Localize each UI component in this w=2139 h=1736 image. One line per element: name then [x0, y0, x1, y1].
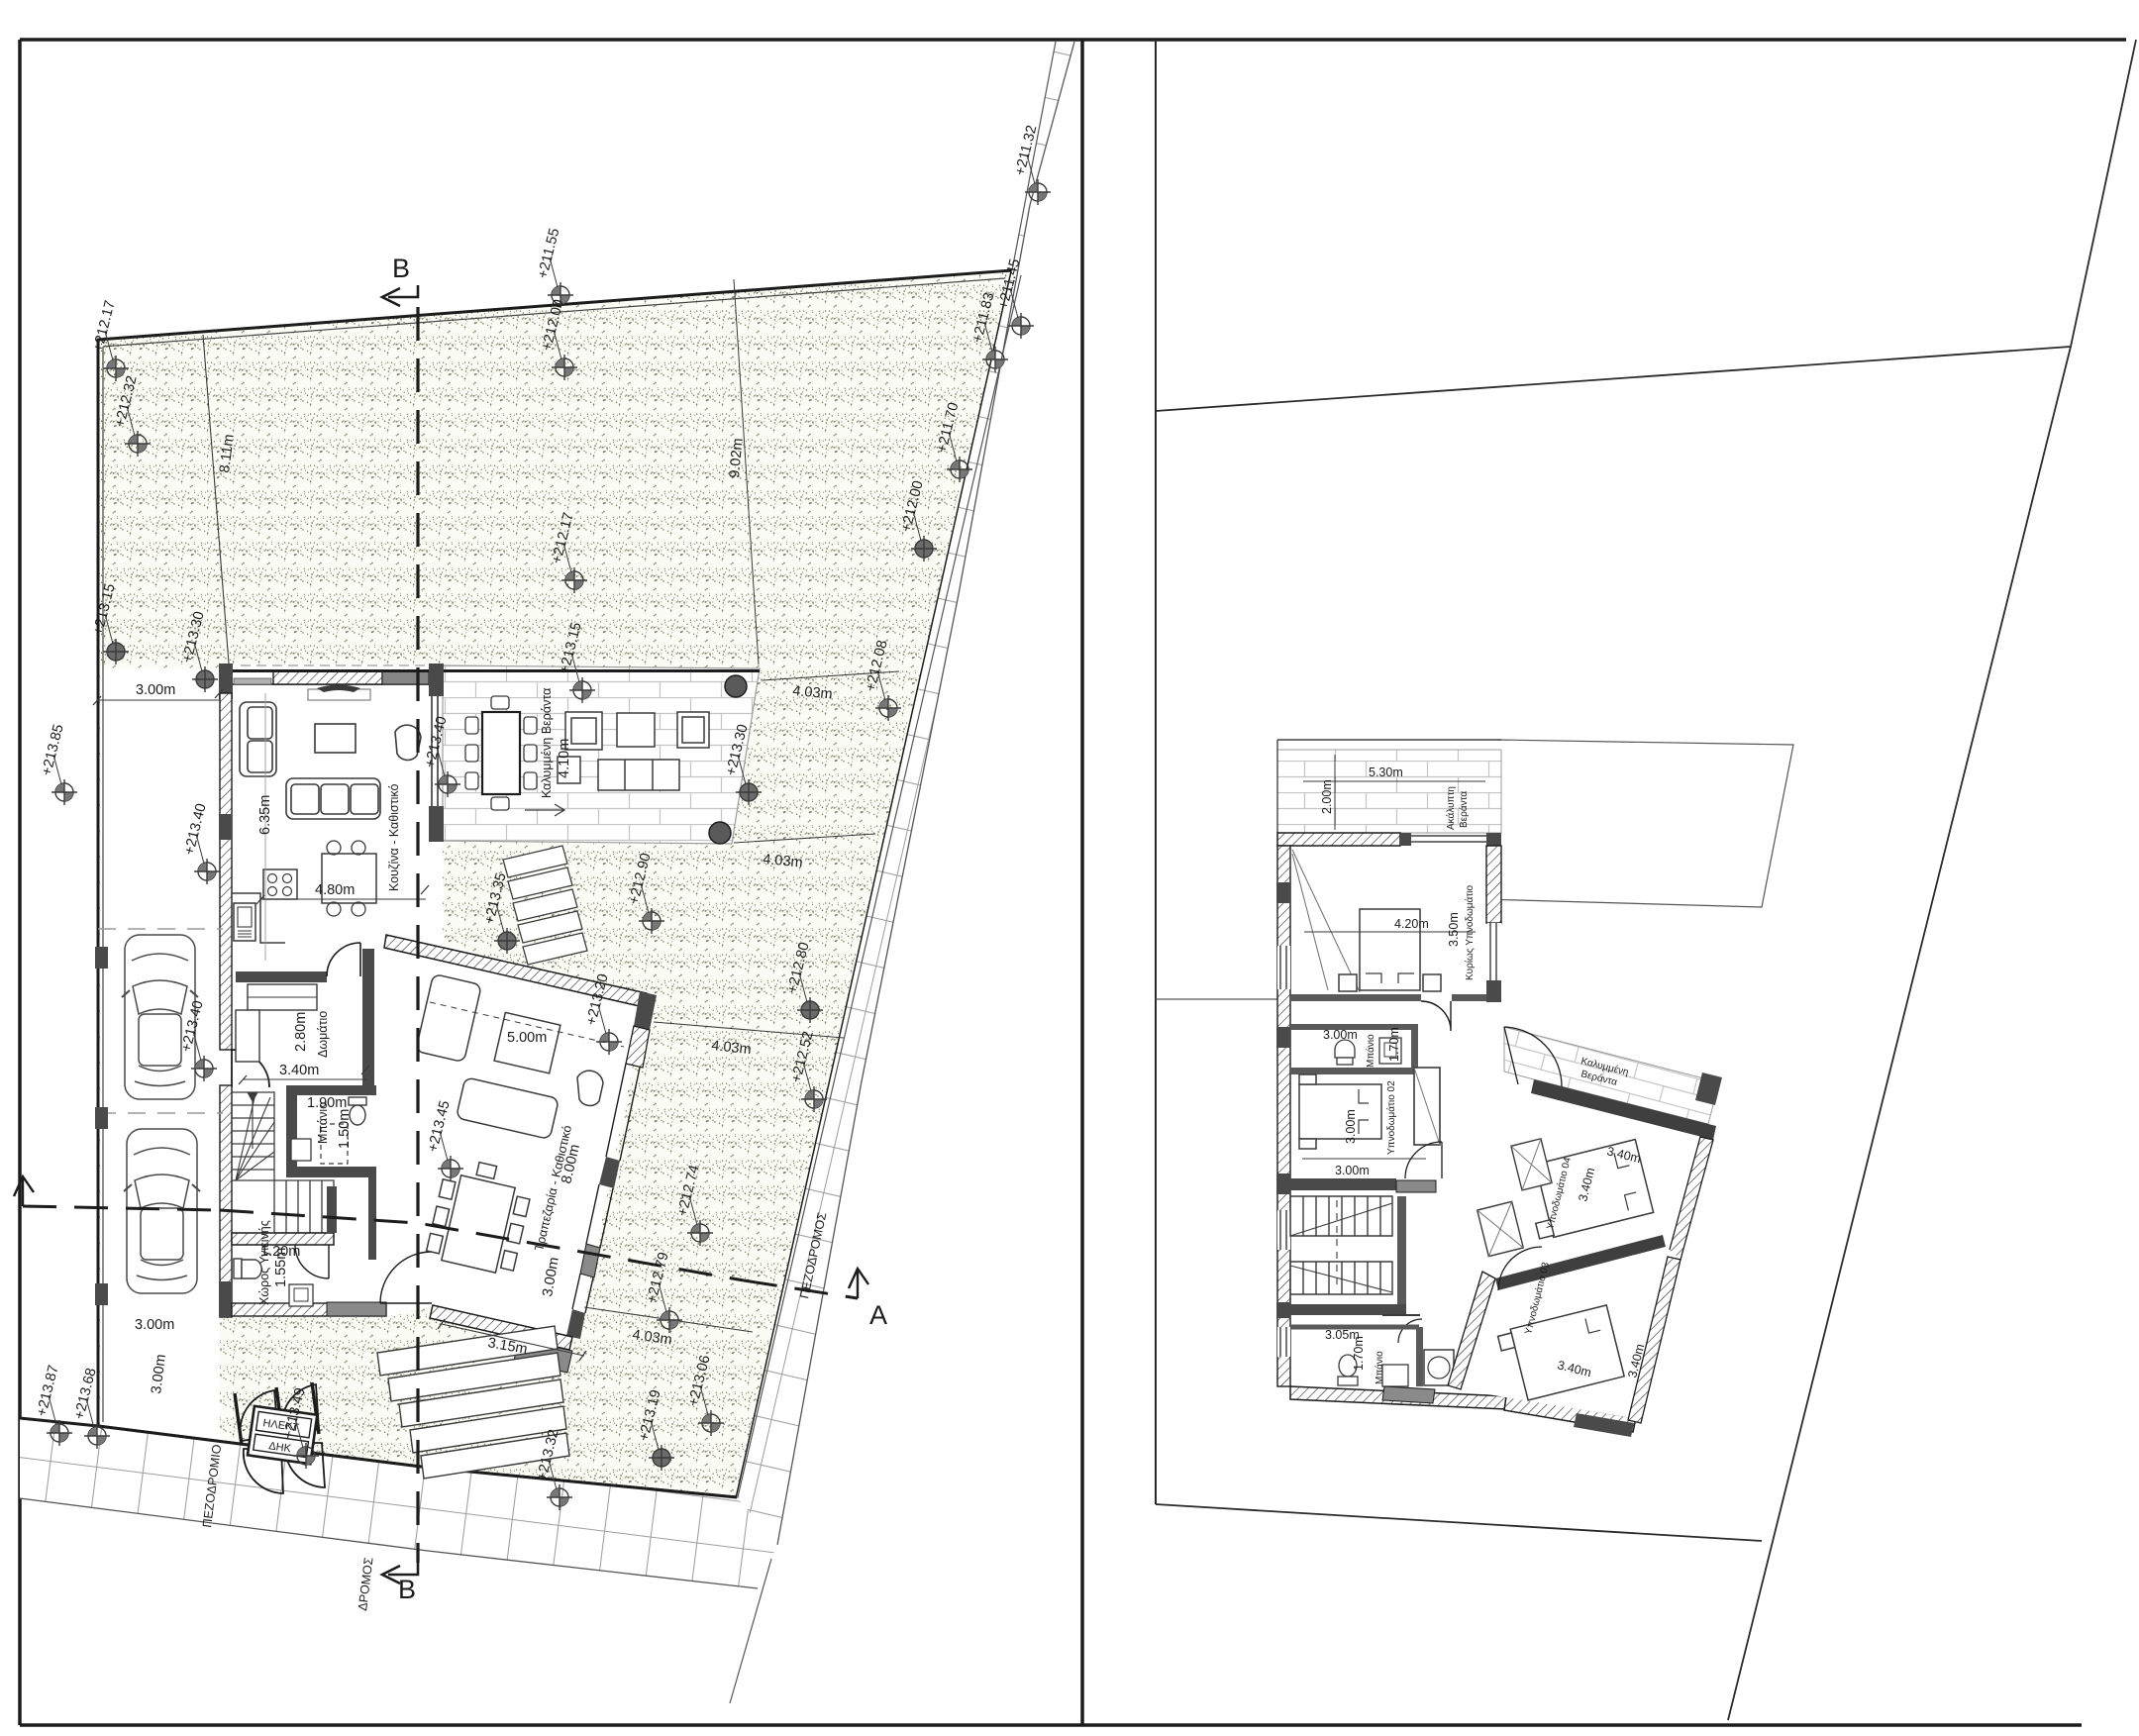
svg-text:5.00m: 5.00m [507, 1030, 547, 1046]
svg-text:3.00m: 3.00m [135, 1317, 174, 1333]
svg-text:3.00m: 3.00m [136, 682, 175, 698]
svg-text:Μπάνιο: Μπάνιο [316, 1102, 330, 1144]
svg-text:4.10m: 4.10m [557, 739, 572, 778]
svg-text:Δωμάτιο: Δωμάτιο [316, 1011, 330, 1058]
svg-text:4.20m: 4.20m [1394, 917, 1429, 931]
svg-text:4.80m: 4.80m [315, 882, 355, 898]
svg-text:Βεράντα: Βεράντα [1458, 791, 1470, 828]
svg-text:3.00m: 3.00m [1323, 1028, 1358, 1042]
svg-text:2.80m: 2.80m [293, 1012, 309, 1052]
svg-text:1.70m: 1.70m [1387, 1027, 1401, 1062]
svg-text:Υπνοδωμάτιο 02: Υπνοδωμάτιο 02 [1385, 1080, 1397, 1155]
svg-text:Κουζίνα - Καθιστικό: Κουζίνα - Καθιστικό [387, 783, 401, 891]
svg-text:3.00m: 3.00m [1335, 1164, 1370, 1177]
svg-text:3.50m: 3.50m [1447, 912, 1461, 947]
svg-text:3.40m: 3.40m [279, 1063, 319, 1078]
svg-text:B: B [398, 1575, 416, 1604]
svg-text:Μπάνιο: Μπάνιο [1365, 1034, 1376, 1068]
svg-text:Καλυμμένη Βεράντα: Καλυμμένη Βεράντα [540, 688, 554, 798]
svg-text:1.55m: 1.55m [273, 1248, 289, 1287]
svg-text:Χώρος Υγιεινής: Χώρος Υγιεινής [257, 1220, 271, 1305]
svg-text:Ακάλυπτη: Ακάλυπτη [1445, 786, 1457, 830]
svg-text:3.00m: 3.00m [1344, 1109, 1358, 1144]
svg-text:5.30m: 5.30m [1369, 766, 1403, 779]
svg-text:1.50m: 1.50m [337, 1109, 353, 1149]
svg-text:1.70m: 1.70m [1352, 1336, 1366, 1371]
svg-text:2.00m: 2.00m [1320, 779, 1334, 814]
svg-text:Κυρίως Υπνοδωμάτιο: Κυρίως Υπνοδωμάτιο [1464, 885, 1476, 980]
svg-text:B: B [392, 254, 410, 283]
svg-text:A: A [869, 1300, 887, 1330]
svg-text:Μπάνιο: Μπάνιο [1374, 1351, 1385, 1384]
svg-text:6.35m: 6.35m [257, 795, 273, 835]
